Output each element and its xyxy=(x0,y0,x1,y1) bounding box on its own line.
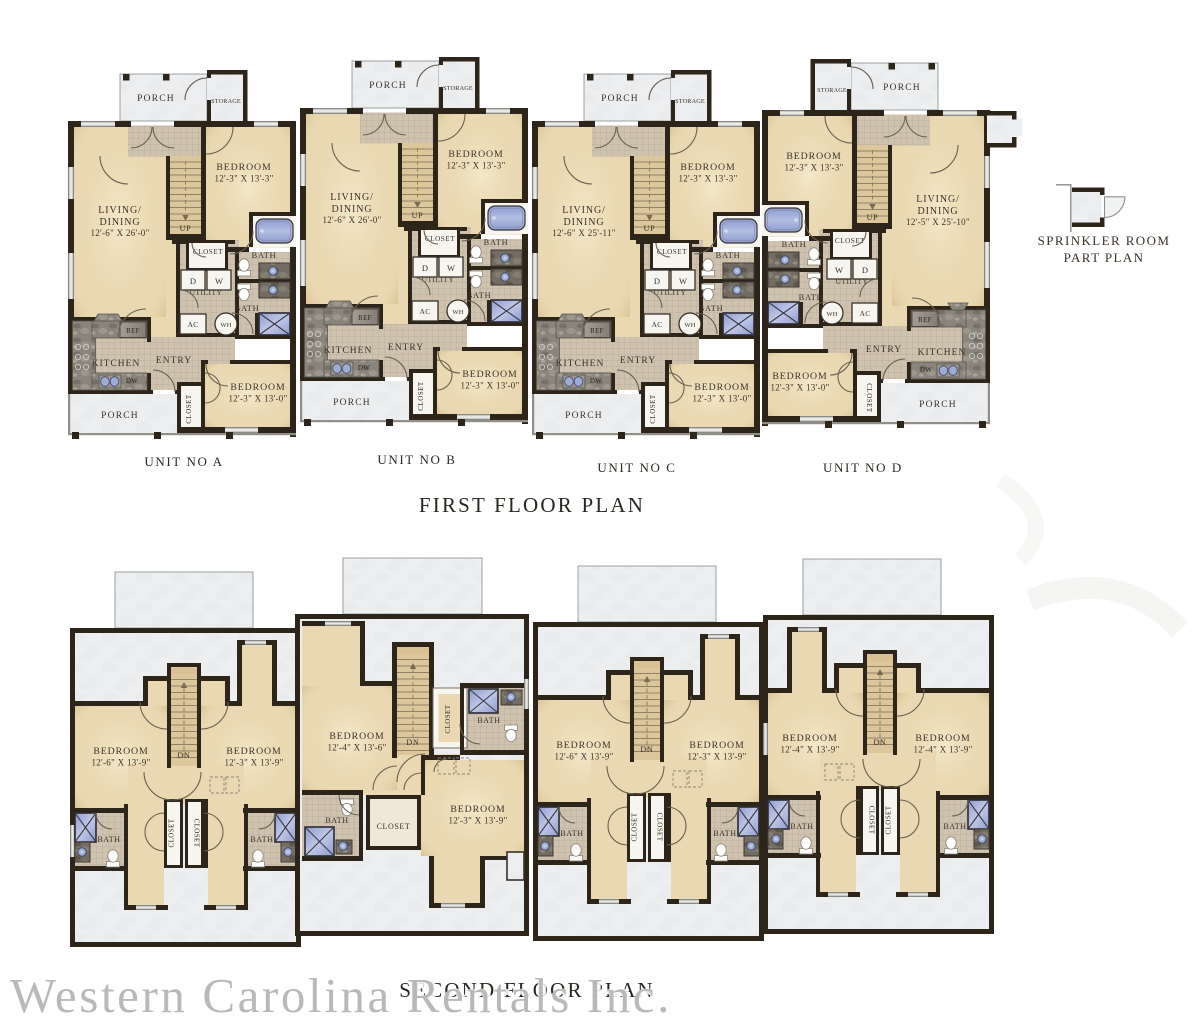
svg-text:BEDROOM: BEDROOM xyxy=(694,382,749,393)
svg-text:UTILITY: UTILITY xyxy=(836,277,869,286)
svg-text:UTILITY: UTILITY xyxy=(190,288,223,297)
svg-text:DW: DW xyxy=(590,377,602,385)
svg-text:12'-4" X 13'-9": 12'-4" X 13'-9" xyxy=(780,745,839,755)
svg-text:BEDROOM: BEDROOM xyxy=(450,804,505,815)
svg-text:REF: REF xyxy=(590,327,604,335)
svg-text:CLOSET: CLOSET xyxy=(417,381,425,411)
svg-text:BATH: BATH xyxy=(235,304,260,313)
svg-text:AC: AC xyxy=(652,320,663,329)
svg-text:REF: REF xyxy=(358,314,372,322)
svg-text:LIVING/: LIVING/ xyxy=(98,205,142,216)
svg-text:12'-3" X 13'-3": 12'-3" X 13'-3" xyxy=(678,174,737,184)
svg-text:12'-3" X 13'-3": 12'-3" X 13'-3" xyxy=(446,161,505,171)
svg-text:BEDROOM: BEDROOM xyxy=(556,740,611,751)
svg-text:PORCH: PORCH xyxy=(333,398,371,408)
svg-text:CLOSET: CLOSET xyxy=(444,704,452,733)
svg-text:BATH: BATH xyxy=(252,251,277,260)
svg-text:UTILITY: UTILITY xyxy=(654,288,687,297)
svg-text:REF: REF xyxy=(918,316,932,324)
svg-text:CLOSET: CLOSET xyxy=(656,813,664,842)
svg-text:BATH: BATH xyxy=(325,816,348,825)
svg-text:12'-3" X 13'-3": 12'-3" X 13'-3" xyxy=(214,174,273,184)
svg-text:UP: UP xyxy=(180,224,192,233)
svg-text:PORCH: PORCH xyxy=(565,411,603,421)
svg-text:UNIT NO C: UNIT NO C xyxy=(597,460,676,475)
svg-text:REF: REF xyxy=(126,327,140,335)
svg-text:D: D xyxy=(654,276,660,286)
svg-text:CLOSET: CLOSET xyxy=(885,805,893,834)
svg-text:BATH: BATH xyxy=(250,835,273,844)
svg-text:DW: DW xyxy=(126,377,138,385)
svg-text:D: D xyxy=(190,276,196,286)
svg-text:CLOSET: CLOSET xyxy=(631,812,639,841)
svg-text:BEDROOM: BEDROOM xyxy=(680,162,735,173)
svg-text:UP: UP xyxy=(867,213,879,222)
svg-text:12'-3" X 13'-9": 12'-3" X 13'-9" xyxy=(224,758,283,768)
svg-text:12'-3" X 13'-9": 12'-3" X 13'-9" xyxy=(687,752,746,762)
svg-text:UP: UP xyxy=(644,224,656,233)
svg-text:LIVING/: LIVING/ xyxy=(562,205,606,216)
svg-text:BATH: BATH xyxy=(467,291,492,300)
svg-text:D: D xyxy=(422,263,428,273)
svg-text:CLOSET: CLOSET xyxy=(377,822,411,831)
svg-text:BEDROOM: BEDROOM xyxy=(448,149,503,160)
svg-text:BATH: BATH xyxy=(799,293,824,302)
svg-text:UTILITY: UTILITY xyxy=(422,275,455,284)
svg-text:BATH: BATH xyxy=(943,822,966,831)
svg-text:W: W xyxy=(835,265,843,275)
svg-text:D: D xyxy=(862,265,868,275)
svg-text:PORCH: PORCH xyxy=(883,83,921,93)
svg-text:BATH: BATH xyxy=(782,240,807,249)
svg-text:BATH: BATH xyxy=(713,829,736,838)
svg-text:CLOSET: CLOSET xyxy=(865,383,873,413)
svg-text:12'-3" X 13'-9": 12'-3" X 13'-9" xyxy=(448,816,507,826)
svg-text:DINING: DINING xyxy=(100,217,141,228)
svg-text:PORCH: PORCH xyxy=(369,81,407,91)
svg-text:UP: UP xyxy=(412,211,424,220)
svg-text:BATH: BATH xyxy=(477,716,500,725)
svg-text:12'-6" X 25'-11": 12'-6" X 25'-11" xyxy=(552,228,616,238)
svg-text:PORCH: PORCH xyxy=(919,400,957,410)
svg-text:BEDROOM: BEDROOM xyxy=(216,162,271,173)
svg-text:WH: WH xyxy=(684,322,695,329)
svg-text:W: W xyxy=(679,276,687,286)
svg-text:KITCHEN: KITCHEN xyxy=(918,348,967,358)
svg-text:BATH: BATH xyxy=(790,822,813,831)
svg-text:DN: DN xyxy=(640,745,653,754)
svg-text:LIVING/: LIVING/ xyxy=(916,194,960,205)
svg-text:DINING: DINING xyxy=(918,206,959,217)
svg-text:12'-4" X 13'-9": 12'-4" X 13'-9" xyxy=(913,745,972,755)
svg-text:12'-6" X 13'-9": 12'-6" X 13'-9" xyxy=(91,758,150,768)
svg-text:W: W xyxy=(447,263,455,273)
svg-text:CLOSET: CLOSET xyxy=(168,818,176,847)
svg-text:12'-3" X 13'-0": 12'-3" X 13'-0" xyxy=(460,381,519,391)
svg-text:12'-3" X 13'-3": 12'-3" X 13'-3" xyxy=(784,163,843,173)
svg-text:BEDROOM: BEDROOM xyxy=(226,746,281,757)
svg-text:CLOSET: CLOSET xyxy=(185,394,193,424)
svg-text:BEDROOM: BEDROOM xyxy=(93,746,148,757)
svg-text:KITCHEN: KITCHEN xyxy=(556,359,605,369)
svg-text:BATH: BATH xyxy=(699,304,724,313)
svg-text:12'-6" X 13'-9": 12'-6" X 13'-9" xyxy=(554,752,613,762)
svg-text:12'-3" X 13'-0": 12'-3" X 13'-0" xyxy=(770,383,829,393)
svg-text:BEDROOM: BEDROOM xyxy=(782,733,837,744)
svg-text:CLOSET: CLOSET xyxy=(868,806,876,835)
svg-text:KITCHEN: KITCHEN xyxy=(324,346,373,356)
svg-text:Western Carolina Rentals Inc.: Western Carolina Rentals Inc. xyxy=(10,968,672,1023)
svg-text:WH: WH xyxy=(826,311,837,318)
svg-text:BATH: BATH xyxy=(97,835,120,844)
svg-text:12'-4" X 13'-6": 12'-4" X 13'-6" xyxy=(327,743,386,753)
svg-text:WH: WH xyxy=(452,309,463,316)
svg-text:SPRINKLER ROOM: SPRINKLER ROOM xyxy=(1038,233,1171,248)
svg-text:BEDROOM: BEDROOM xyxy=(462,369,517,380)
svg-text:DW: DW xyxy=(358,364,370,372)
svg-text:BATH: BATH xyxy=(560,829,583,838)
svg-text:CLOSET: CLOSET xyxy=(649,394,657,424)
svg-text:BEDROOM: BEDROOM xyxy=(230,382,285,393)
svg-text:DN: DN xyxy=(177,751,190,760)
svg-text:BEDROOM: BEDROOM xyxy=(786,151,841,162)
svg-text:UNIT NO B: UNIT NO B xyxy=(377,452,456,467)
svg-text:STORAGE: STORAGE xyxy=(211,98,241,105)
svg-text:FIRST FLOOR PLAN: FIRST FLOOR PLAN xyxy=(419,493,645,517)
svg-text:STORAGE: STORAGE xyxy=(443,85,473,92)
svg-text:DW: DW xyxy=(920,366,932,374)
svg-text:ENTRY: ENTRY xyxy=(388,343,424,353)
svg-text:DINING: DINING xyxy=(332,204,373,215)
svg-text:BEDROOM: BEDROOM xyxy=(915,733,970,744)
svg-text:PORCH: PORCH xyxy=(137,94,175,104)
svg-text:W: W xyxy=(215,276,223,286)
svg-text:BATH: BATH xyxy=(484,238,509,247)
svg-text:ENTRY: ENTRY xyxy=(156,356,192,366)
svg-text:UNIT NO D: UNIT NO D xyxy=(823,460,903,475)
svg-text:AC: AC xyxy=(188,320,199,329)
svg-text:PORCH: PORCH xyxy=(601,94,639,104)
svg-text:CLOSET: CLOSET xyxy=(835,237,865,245)
svg-text:DINING: DINING xyxy=(564,217,605,228)
svg-text:BEDROOM: BEDROOM xyxy=(772,371,827,382)
svg-text:PORCH: PORCH xyxy=(101,411,139,421)
svg-text:AC: AC xyxy=(420,307,431,316)
svg-text:CLOSET: CLOSET xyxy=(193,819,201,848)
svg-text:STORAGE: STORAGE xyxy=(675,98,705,105)
svg-text:WH: WH xyxy=(220,322,231,329)
svg-text:AC: AC xyxy=(860,309,871,318)
svg-text:STORAGE: STORAGE xyxy=(817,87,847,94)
svg-text:ENTRY: ENTRY xyxy=(866,345,902,355)
svg-text:LIVING/: LIVING/ xyxy=(330,192,374,203)
svg-text:12'-3" X 13'-0": 12'-3" X 13'-0" xyxy=(692,394,751,404)
svg-text:UNIT NO A: UNIT NO A xyxy=(144,454,223,469)
svg-text:12'-5" X 25'-10": 12'-5" X 25'-10" xyxy=(906,217,970,227)
svg-text:BEDROOM: BEDROOM xyxy=(329,731,384,742)
svg-text:12'-3" X 13'-0": 12'-3" X 13'-0" xyxy=(228,394,287,404)
svg-text:ENTRY: ENTRY xyxy=(620,356,656,366)
svg-text:DN: DN xyxy=(406,738,419,747)
svg-text:DN: DN xyxy=(873,738,886,747)
svg-text:BATH: BATH xyxy=(716,251,741,260)
svg-text:12'-6" X 26'-0": 12'-6" X 26'-0" xyxy=(90,228,149,238)
svg-text:12'-6" X 26'-0": 12'-6" X 26'-0" xyxy=(322,215,381,225)
svg-text:PART PLAN: PART PLAN xyxy=(1064,250,1145,265)
svg-text:KITCHEN: KITCHEN xyxy=(92,359,141,369)
svg-text:BEDROOM: BEDROOM xyxy=(689,740,744,751)
